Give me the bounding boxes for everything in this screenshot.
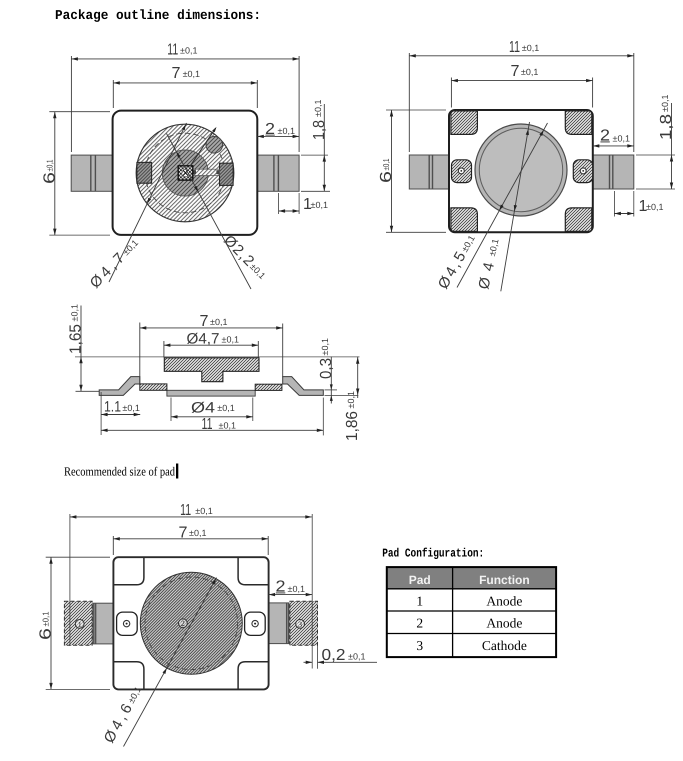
svg-text:0,2: 0,2 — [322, 647, 346, 664]
svg-text:±0,1: ±0,1 — [346, 391, 356, 408]
svg-text:±0,1: ±0,1 — [222, 335, 239, 345]
svg-text:11: 11 — [509, 39, 520, 56]
svg-text:1,8: 1,8 — [658, 114, 675, 140]
svg-text:Recommended size of pad: Recommended size of pad — [64, 465, 176, 479]
svg-text:±0,1: ±0,1 — [613, 134, 630, 144]
svg-text:±0,1: ±0,1 — [288, 584, 305, 594]
svg-text:±0,1: ±0,1 — [189, 528, 206, 538]
svg-text:Anode: Anode — [486, 593, 522, 608]
svg-text:Ø4: Ø4 — [191, 400, 215, 417]
svg-text:±0,1: ±0,1 — [217, 403, 234, 413]
svg-text:6: 6 — [378, 171, 395, 183]
svg-text:±0,1: ±0,1 — [320, 338, 330, 355]
svg-text:7: 7 — [172, 65, 181, 82]
svg-text:Cathode: Cathode — [482, 638, 527, 653]
svg-text:Package outline dimensions:: Package outline dimensions: — [55, 9, 261, 24]
svg-text:7: 7 — [511, 63, 520, 80]
svg-text:11: 11 — [202, 416, 213, 433]
svg-text:Pad: Pad — [409, 573, 431, 587]
svg-text:±0,1: ±0,1 — [180, 46, 197, 56]
svg-text:±0,1: ±0,1 — [122, 403, 139, 413]
svg-text:±0,1: ±0,1 — [70, 304, 80, 321]
svg-text:Anode: Anode — [486, 616, 522, 631]
svg-text:±0,1: ±0,1 — [183, 69, 200, 79]
svg-text:±0,1: ±0,1 — [45, 159, 55, 171]
svg-text:0,3: 0,3 — [318, 358, 335, 379]
svg-text:±0,1: ±0,1 — [195, 506, 212, 516]
svg-text:11: 11 — [180, 502, 191, 519]
svg-text:1: 1 — [416, 593, 423, 608]
svg-text:±0,1: ±0,1 — [219, 421, 236, 431]
svg-text:Function: Function — [479, 573, 530, 587]
svg-text:6: 6 — [38, 628, 55, 640]
svg-text:1,86: 1,86 — [344, 411, 361, 441]
svg-text:±0,1: ±0,1 — [660, 95, 670, 112]
svg-text:1: 1 — [78, 620, 82, 629]
svg-text:±0,1: ±0,1 — [313, 100, 323, 117]
svg-text:±0,1: ±0,1 — [278, 126, 295, 136]
svg-text:1.1: 1.1 — [104, 399, 121, 416]
svg-text:2: 2 — [416, 616, 423, 631]
svg-text:±0,1: ±0,1 — [210, 317, 227, 327]
svg-text:3: 3 — [298, 620, 302, 629]
svg-text:±0,1: ±0,1 — [381, 158, 391, 170]
svg-text:±0,1: ±0,1 — [646, 202, 663, 212]
svg-text:1,65: 1,65 — [68, 324, 85, 354]
svg-text:2: 2 — [181, 619, 185, 628]
svg-text:1,8: 1,8 — [311, 120, 328, 140]
svg-text:7: 7 — [179, 524, 188, 541]
svg-text:11: 11 — [167, 42, 178, 59]
svg-text:±0,1: ±0,1 — [41, 611, 51, 626]
svg-text:Ø4,7: Ø4,7 — [187, 330, 220, 347]
svg-text:±0,1: ±0,1 — [348, 652, 365, 662]
svg-text:±0,1: ±0,1 — [522, 43, 539, 53]
svg-text:Pad Configuration:: Pad Configuration: — [382, 546, 484, 560]
svg-text:3: 3 — [416, 638, 423, 653]
svg-text:7: 7 — [200, 313, 209, 330]
svg-text:±0,1: ±0,1 — [521, 67, 538, 77]
svg-text:±0,1: ±0,1 — [311, 200, 328, 210]
svg-text:6: 6 — [42, 172, 59, 184]
